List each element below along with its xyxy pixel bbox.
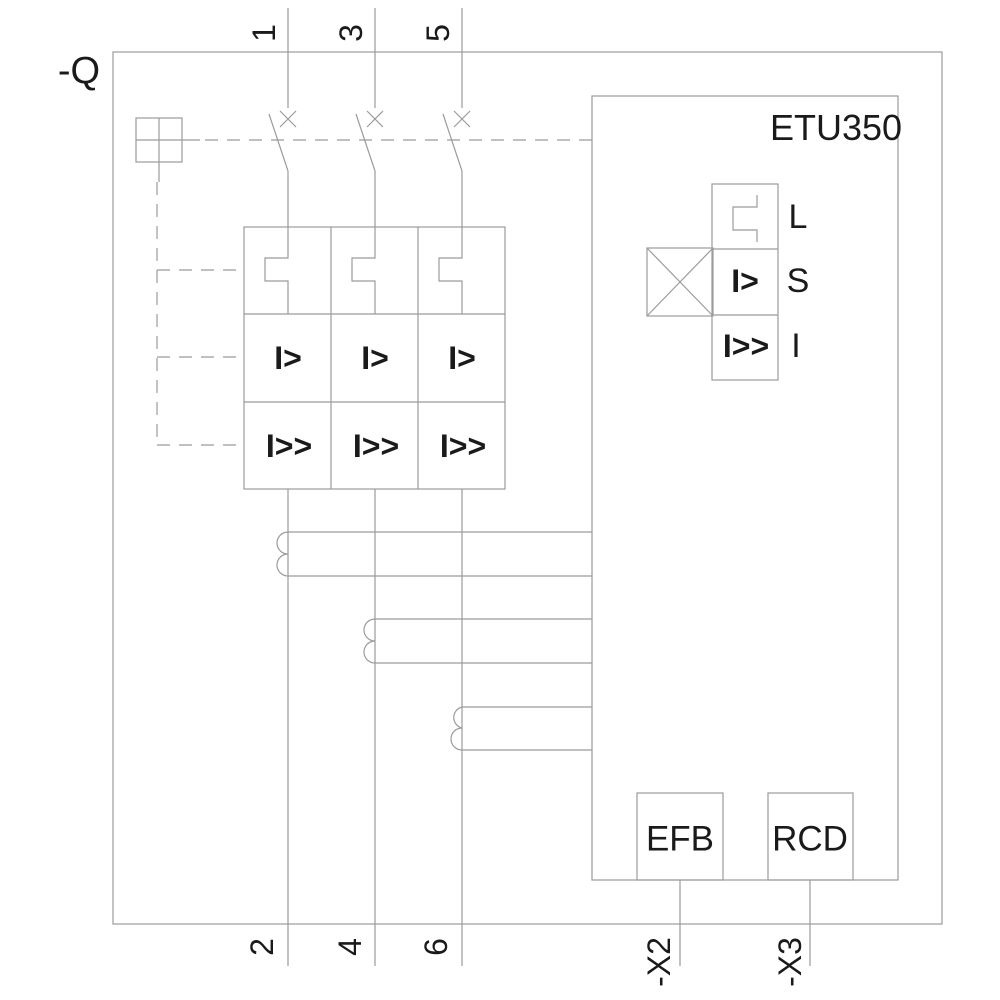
- breaker-designation-label: -Q: [58, 52, 100, 90]
- pole-2-overcurrent-symbol: I>: [361, 342, 389, 374]
- etu-overcurrent-symbol: I>: [731, 265, 759, 297]
- etu-function-label-l: L: [789, 200, 808, 234]
- bottom-terminal-label-6: 6: [420, 938, 452, 956]
- current-transformer-1: [277, 532, 592, 576]
- pole-1-instantaneous-symbol: I>>: [266, 430, 312, 462]
- mechanism-symbol: [136, 118, 200, 182]
- pole-2-conductor: [352, 8, 383, 966]
- pole-3-overcurrent-symbol: I>: [448, 342, 476, 374]
- x3-terminal-label: -X3: [774, 937, 806, 987]
- pole-1-overcurrent-symbol: I>: [274, 342, 302, 374]
- current-transformer-2: [364, 619, 592, 663]
- top-terminal-label-1: 1: [248, 24, 280, 42]
- etu-crossed-box: [647, 248, 713, 316]
- top-terminal-label-3: 3: [335, 24, 367, 42]
- current-transformer-3: [451, 707, 592, 750]
- top-terminal-label-5: 5: [422, 24, 454, 42]
- etu-function-label-i: I: [791, 329, 800, 363]
- pole-2-instantaneous-symbol: I>>: [353, 430, 399, 462]
- etu-box: [592, 96, 898, 880]
- bottom-terminal-label-2: 2: [246, 938, 278, 956]
- efb-module-label: EFB: [646, 822, 714, 857]
- circuit-breaker-schematic: -Q 1 3 5 2 4 6 ETU350 L S I I> I>> I> I>…: [0, 0, 1000, 1000]
- rcd-module-label: RCD: [772, 822, 848, 857]
- x2-terminal-label: -X2: [643, 937, 675, 987]
- etu-instantaneous-symbol: I>>: [723, 330, 769, 362]
- bottom-terminal-label-4: 4: [334, 938, 366, 956]
- pole-3-instantaneous-symbol: I>>: [440, 430, 486, 462]
- schematic-linework: [0, 0, 1000, 1000]
- pole-1-conductor: [265, 8, 296, 966]
- etu-title: ETU350: [770, 110, 902, 146]
- pole-3-conductor: [439, 8, 470, 966]
- etu-function-label-s: S: [787, 264, 810, 298]
